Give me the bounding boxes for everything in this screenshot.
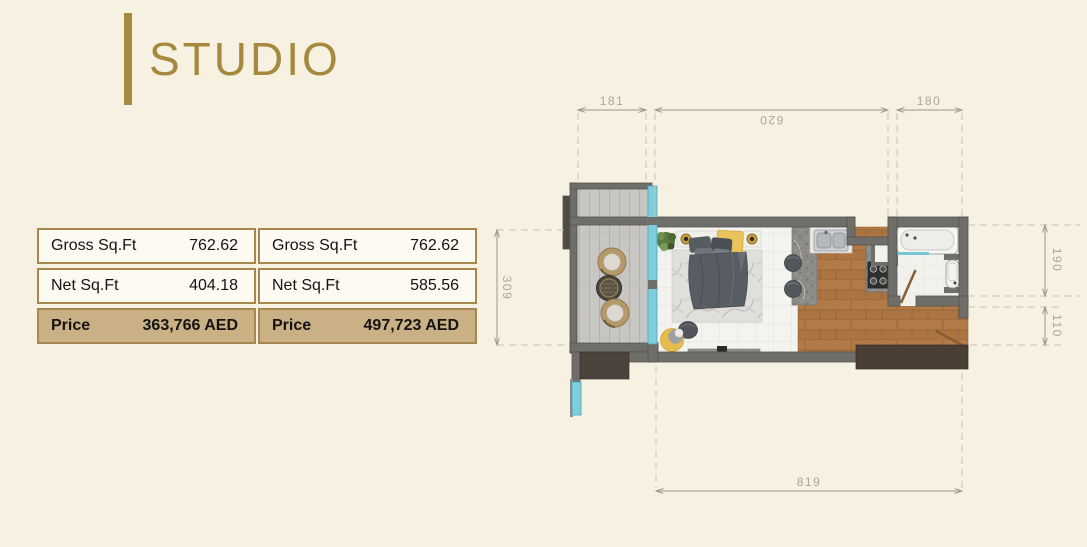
- row-label: Gross Sq.Ft: [272, 237, 357, 255]
- row-label: Net Sq.Ft: [272, 277, 340, 295]
- dim-label-bathroom-depth: 190: [1050, 248, 1064, 273]
- crescent-chair: [661, 329, 684, 352]
- table-row: Gross Sq.Ft 762.62: [37, 228, 256, 264]
- dim-label-balcony-width: 181: [600, 94, 625, 108]
- bathtub: [897, 226, 958, 255]
- kitchen-sink: [810, 227, 852, 253]
- price-table-1: Gross Sq.Ft 762.62 Net Sq.Ft 404.18 Pric…: [37, 228, 256, 344]
- ac-ledge: [580, 352, 629, 379]
- table-row: Net Sq.Ft 585.56: [258, 268, 477, 304]
- row-value: 585.56: [410, 277, 459, 295]
- dim-label-entry-depth: 110: [1050, 314, 1064, 338]
- dim-label-bathroom-width: 180: [917, 94, 942, 108]
- balcony-table: [597, 276, 622, 301]
- row-label: Price: [51, 317, 90, 335]
- row-label: Gross Sq.Ft: [51, 237, 136, 255]
- dim-label-unit-length: 819: [797, 475, 822, 489]
- row-value: 762.62: [189, 237, 238, 255]
- row-label: Price: [272, 317, 311, 335]
- balcony-chair: [598, 248, 626, 276]
- toilet-icon: [944, 254, 960, 293]
- entry-threshold-block: [856, 345, 968, 369]
- row-value: 762.62: [410, 237, 459, 255]
- wall-fin: [563, 196, 570, 249]
- title-accent-bar: [124, 13, 132, 105]
- table-row: Gross Sq.Ft 762.62: [258, 228, 477, 264]
- balcony-chair: [601, 299, 629, 327]
- row-value: 363,766 AED: [143, 317, 238, 335]
- page-header: STUDIO: [124, 13, 341, 105]
- table-row-price: Price 363,766 AED: [37, 308, 256, 344]
- glass-wall: [648, 186, 657, 344]
- table-row-price: Price 497,723 AED: [258, 308, 477, 344]
- price-table-2: Gross Sq.Ft 762.62 Net Sq.Ft 585.56 Pric…: [258, 228, 477, 344]
- row-value: 404.18: [189, 277, 238, 295]
- row-value: 497,723 AED: [364, 317, 459, 335]
- side-glass-panel: [570, 379, 581, 417]
- row-label: Net Sq.Ft: [51, 277, 119, 295]
- page-title: STUDIO: [149, 32, 341, 86]
- price-tables: Gross Sq.Ft 762.62 Net Sq.Ft 404.18 Pric…: [37, 228, 477, 344]
- dim-label-balcony-depth: 309: [500, 276, 514, 301]
- dim-label-unit-width: 620: [759, 113, 784, 127]
- table-row: Net Sq.Ft 404.18: [37, 268, 256, 304]
